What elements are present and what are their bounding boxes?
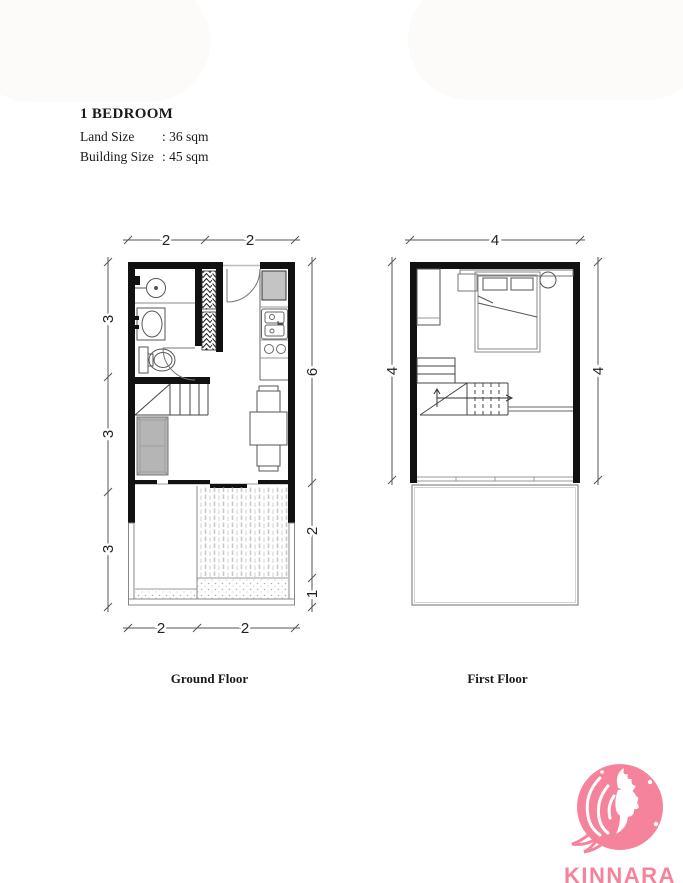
kinnara-logo-mark (562, 760, 678, 856)
chair-symbol (257, 445, 280, 471)
railing (508, 407, 573, 411)
fridge-symbol (262, 271, 286, 300)
dim-label: 2 (304, 527, 321, 535)
pillow (511, 278, 533, 290)
bathroom (135, 276, 195, 380)
building-size-value: : 45 sqm (162, 147, 209, 167)
land-size-row: Land Size : 36 sqm (80, 127, 209, 147)
dimension-top: 2 2 (123, 232, 300, 249)
background-blob-left (0, 0, 210, 102)
dim-label: 3 (100, 430, 117, 438)
terrace-parapet-right (289, 523, 295, 605)
terrace-step (197, 579, 288, 599)
carport-step (135, 590, 197, 599)
toilet-symbol (139, 347, 175, 373)
dim-label: 3 (100, 545, 117, 553)
dining-set (250, 386, 287, 471)
sofa-symbol (137, 417, 168, 475)
dim-label: 6 (304, 368, 321, 376)
dim-label: 2 (246, 232, 254, 249)
stove-symbol (265, 345, 286, 354)
dimension-bottom: 2 2 (123, 620, 300, 637)
dim-label: 2 (241, 620, 249, 637)
plan-title: 1 BEDROOM (80, 106, 209, 123)
chair-symbol (257, 386, 280, 412)
background-blob-right (408, 0, 683, 100)
brand-logo: KINNARA (562, 760, 678, 883)
dim-label: 2 (162, 232, 170, 249)
brand-name: KINNARA (560, 863, 680, 883)
wardrobe-symbol (417, 269, 440, 325)
dim-label: 1 (304, 590, 321, 598)
dim-label: 4 (384, 367, 401, 375)
header: 1 BEDROOM Land Size : 36 sqm Building Si… (80, 106, 209, 167)
pillow (483, 278, 507, 290)
stairs-symbol (135, 384, 208, 415)
kitchen (260, 269, 288, 380)
ground-floor-plan: 2 2 2 2 3 3 3 6 2 1 (95, 228, 330, 658)
bathroom-door-arc (163, 348, 195, 380)
dim-label: 2 (157, 620, 165, 637)
stairs-symbol (417, 358, 573, 415)
building-size-label: Building Size (80, 147, 162, 167)
land-size-value: : 36 sqm (162, 127, 209, 147)
terrace-parapet-left (129, 523, 135, 605)
walls (410, 262, 580, 483)
terrace-paving (197, 486, 288, 578)
entry-door-arc (227, 269, 260, 302)
dimension-top: 4 (405, 232, 585, 249)
nightstand-symbol (458, 274, 477, 291)
dimension-left: 3 3 3 (100, 257, 117, 612)
wardrobe-symbol (202, 271, 216, 350)
dimension-left: 4 (384, 257, 401, 485)
ground-floor-label: Ground Floor (92, 671, 327, 687)
building-size-row: Building Size : 45 sqm (80, 147, 209, 167)
roof-outline (412, 485, 578, 605)
terrace-parapet-bottom (129, 599, 295, 605)
dim-label: 4 (491, 232, 499, 249)
sink-symbol (135, 308, 165, 340)
dining-table-symbol (250, 412, 287, 445)
stair-direction-arrow (434, 389, 512, 407)
dim-label: 3 (100, 315, 117, 323)
first-floor-plan: 4 4 4 (380, 228, 615, 658)
floorplan-page: 1 BEDROOM Land Size : 36 sqm Building Si… (0, 0, 683, 883)
kitchen-sink-symbol (262, 309, 288, 339)
window-symbol (417, 477, 573, 481)
terrace (129, 486, 295, 605)
dimension-right: 6 2 1 (304, 257, 321, 612)
first-floor-label: First Floor (380, 671, 615, 687)
dimension-right: 4 (590, 257, 607, 485)
dim-label: 4 (590, 367, 607, 375)
bed-symbol (475, 272, 540, 352)
shower-symbol (135, 276, 166, 298)
land-size-label: Land Size (80, 127, 162, 147)
